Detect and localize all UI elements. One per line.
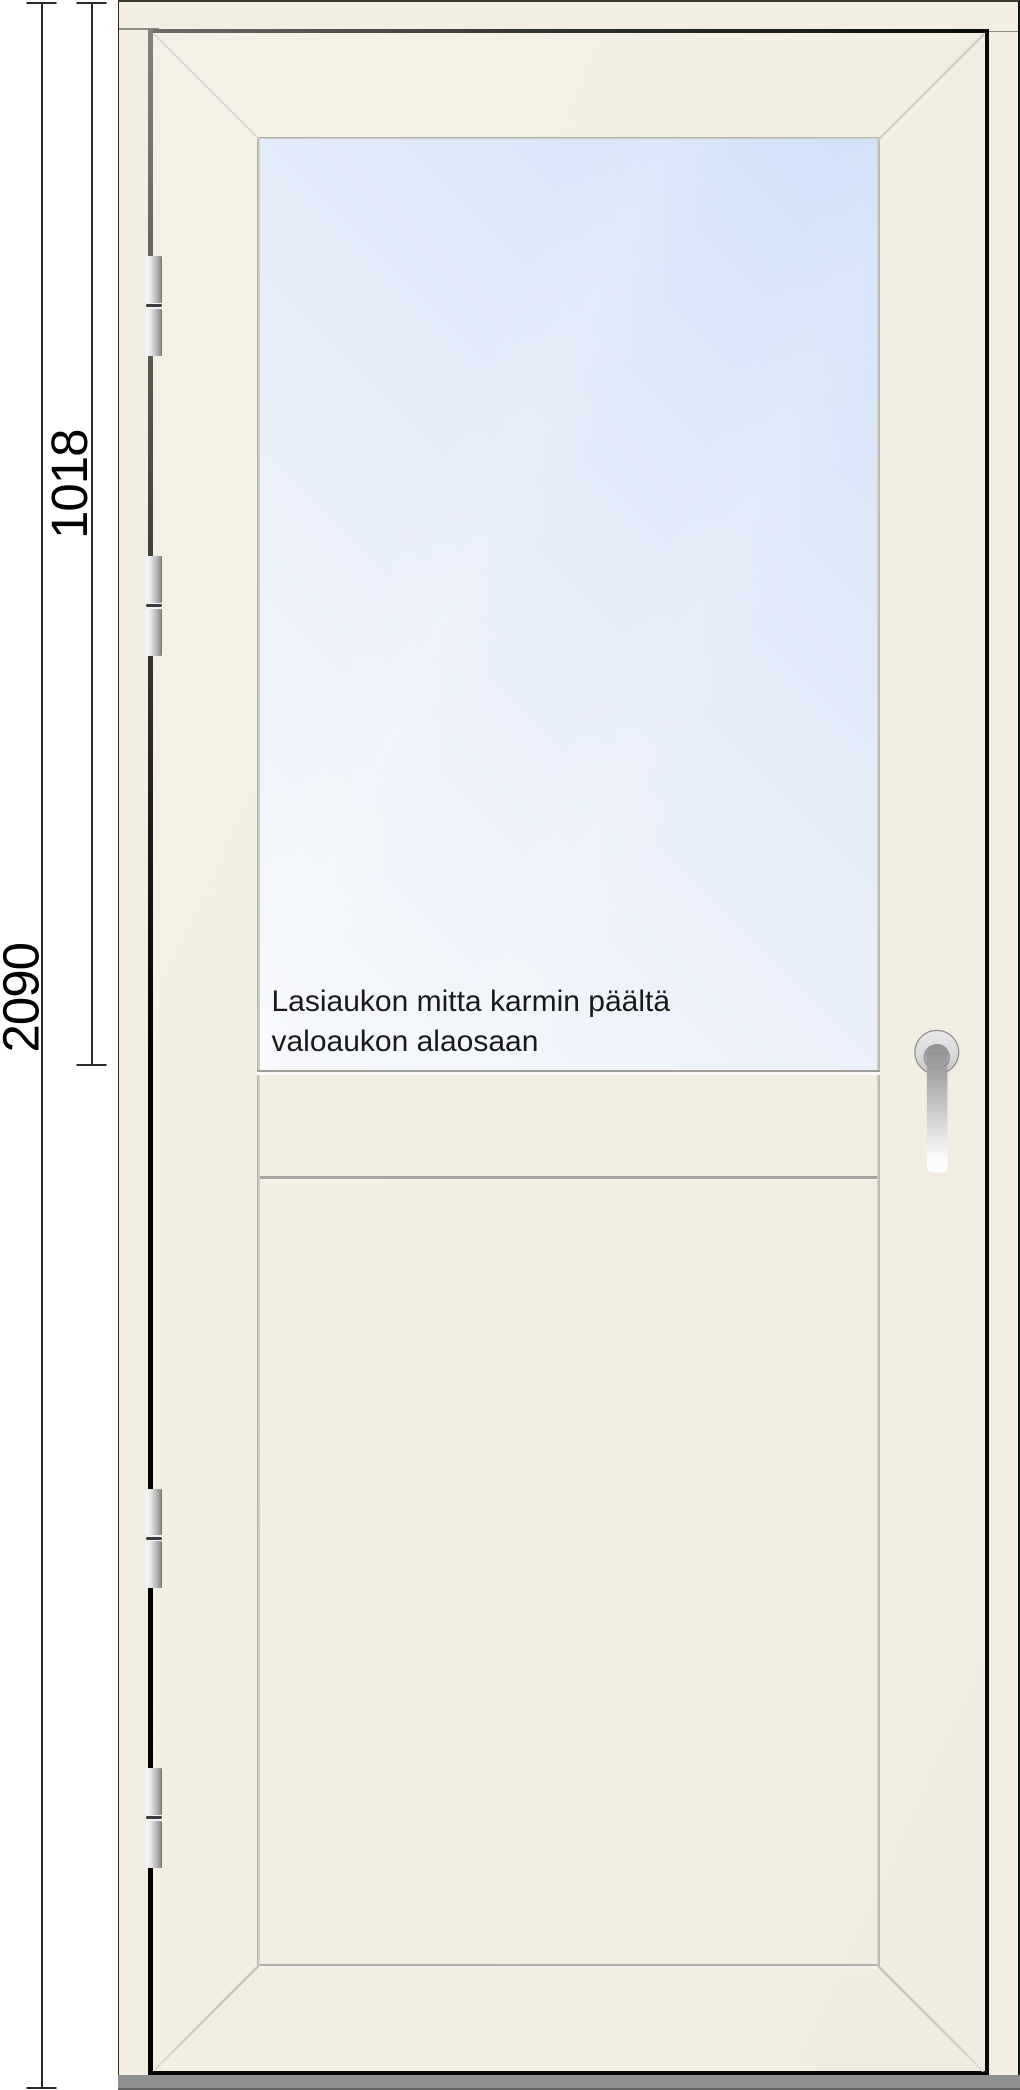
svg-text:1018: 1018 <box>41 430 98 539</box>
svg-text:2090: 2090 <box>0 943 50 1052</box>
